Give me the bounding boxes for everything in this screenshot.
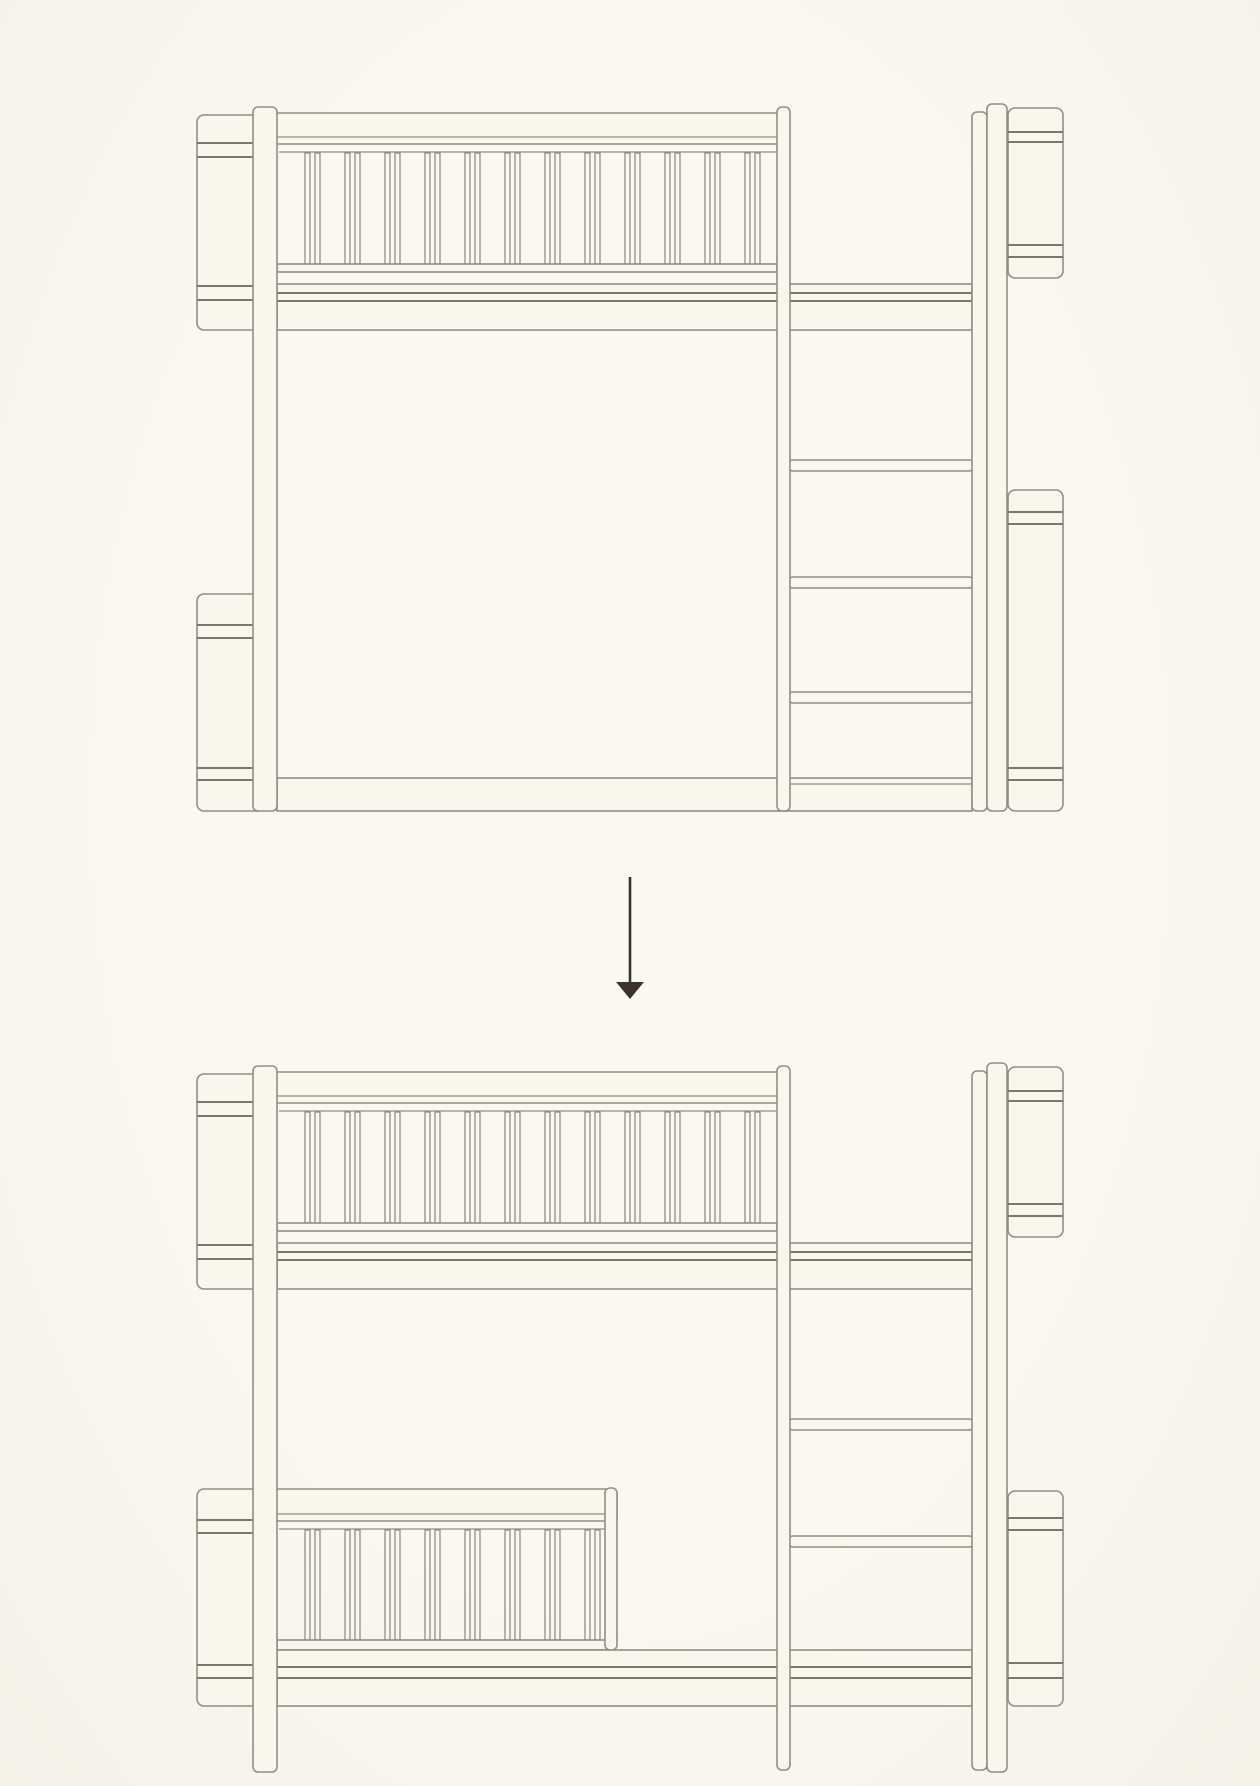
diagram-canvas: [0, 0, 1260, 1786]
upper-bed-base: [277, 284, 972, 330]
ladder-rung-2: [788, 1536, 974, 1547]
panel-lower-right: [1008, 1491, 1063, 1706]
right-post: [987, 1063, 1007, 1772]
conversion-diagram: [0, 0, 1260, 1786]
top-rail: [260, 1072, 788, 1103]
ladder-rung-1: [788, 460, 974, 471]
railing-bottom-rail: [277, 264, 777, 272]
lower-railing-post: [605, 1488, 617, 1650]
railing-bottom-rail: [277, 1223, 777, 1231]
bottom-rail-band: [277, 778, 972, 811]
upper-railing-slats: [305, 153, 760, 264]
panel-lower-right: [1008, 490, 1063, 811]
right-post: [987, 104, 1007, 811]
upper-bed-base: [277, 1243, 972, 1289]
upper-railing-slats: [305, 1112, 760, 1223]
ladder-left-rail: [777, 107, 790, 811]
ladder-left-rail: [777, 1066, 790, 1770]
panel-upper-right: [1008, 1067, 1063, 1237]
figure-bunk-bed-before: [197, 104, 1063, 811]
lower-guard-rail: [260, 1489, 617, 1521]
figure-bunk-bed-after: [197, 1063, 1063, 1772]
ladder-right-rail: [972, 1071, 987, 1770]
lower-railing-slats: [305, 1530, 600, 1640]
left-leg: [253, 1066, 277, 1772]
left-leg: [253, 107, 277, 811]
top-rail: [260, 113, 788, 144]
ladder-rung-2: [788, 577, 974, 588]
lower-railing-bottom-rail: [277, 1640, 607, 1650]
ladder-right-rail: [972, 112, 987, 811]
ladder-rung-3: [788, 692, 974, 703]
arrow-down-icon: [616, 877, 644, 999]
panel-upper-right: [1008, 108, 1063, 278]
ladder-rung-1: [788, 1419, 974, 1430]
